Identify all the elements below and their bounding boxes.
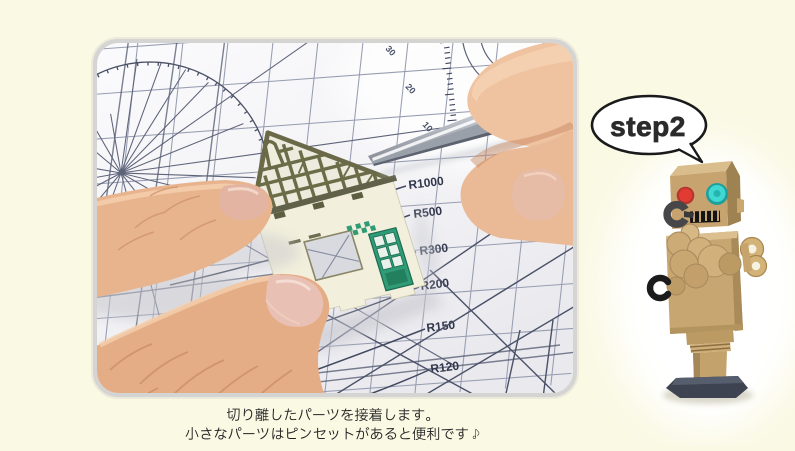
svg-text:step2: step2 xyxy=(610,111,686,142)
